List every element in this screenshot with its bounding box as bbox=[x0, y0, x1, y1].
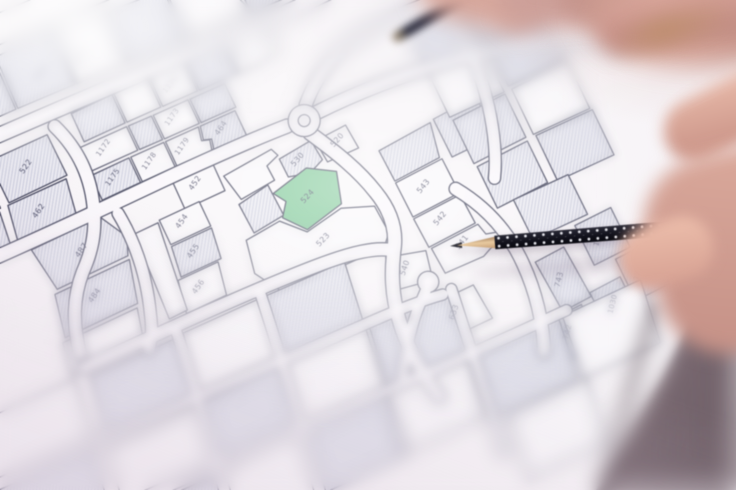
pencil-wood-cone bbox=[457, 236, 498, 251]
cadastral-map-photo: 1321132211761172117311751178117946452246… bbox=[0, 0, 736, 490]
